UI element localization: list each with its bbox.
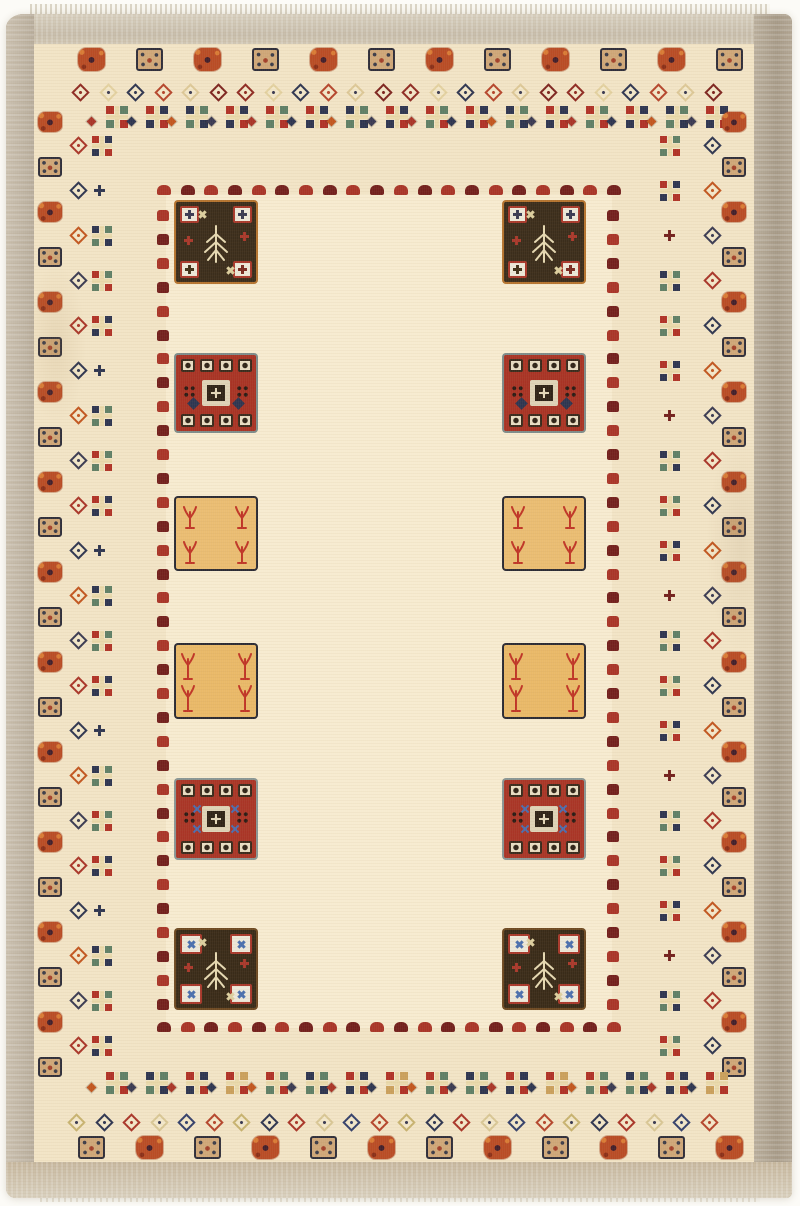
border-square-motif: [484, 48, 511, 71]
dotted-border-motif: [607, 688, 619, 699]
corner-square: [508, 261, 527, 278]
dotted-border-motif: [204, 1022, 218, 1032]
dotted-border-motif: [157, 401, 169, 412]
tree-icon: [199, 947, 233, 991]
diamond-motif: [177, 1113, 195, 1131]
inner-square-dark-tree: [504, 930, 584, 1008]
corner-cross-icon: [566, 210, 575, 219]
inner-square-red-medallion: [504, 355, 584, 431]
diamond-motif: [71, 83, 89, 101]
border-square-motif: [722, 517, 746, 537]
diamond-motif: [69, 226, 87, 244]
dotted-border-motif: [607, 592, 619, 603]
dotted-border-motif: [157, 688, 169, 699]
dotted-border-motif: [157, 449, 169, 460]
cluster-motif: [706, 1072, 728, 1094]
border-square-motif: [542, 48, 569, 71]
dot-cluster: [564, 385, 577, 398]
dot-cluster: [511, 811, 524, 824]
diamond-motif: [703, 946, 721, 964]
diamond-motif: [260, 1113, 278, 1131]
dotted-border-motif: [157, 592, 169, 603]
dotted-border-motif: [607, 521, 619, 532]
navy-diamond-accent: [515, 397, 528, 410]
corner-cross-icon: [566, 265, 575, 274]
center-medallion-core: [207, 385, 225, 401]
dotted-border-motif: [607, 784, 619, 795]
border-square-motif: [722, 562, 746, 582]
dotted-border-motif: [607, 353, 619, 364]
dotted-border-motif: [418, 185, 432, 195]
cluster-motif: [92, 451, 112, 471]
border-square-motif: [722, 697, 746, 717]
center-medallion: [530, 380, 558, 406]
border-square-motif: [658, 48, 685, 71]
border-square-motif: [38, 832, 62, 852]
diamond-motif: [672, 1113, 690, 1131]
cluster-motif: [92, 316, 112, 336]
diamond-motif: [703, 541, 721, 559]
dot-cluster: [183, 811, 196, 824]
diamond-motif: [69, 316, 87, 334]
tree-icon: [181, 502, 199, 530]
cluster-motif: [660, 136, 680, 156]
border-square-motif: [38, 337, 62, 357]
cluster-motif: [426, 1072, 448, 1094]
border-square-motif: [722, 247, 746, 267]
border-square-motif: [38, 427, 62, 447]
border-square-motif: [310, 1136, 337, 1159]
small-diamond-motif: [327, 1083, 337, 1093]
cluster-motif: [660, 361, 680, 381]
cluster-motif: [146, 106, 168, 128]
small-diamond-motif: [607, 1083, 617, 1093]
cluster-motif: [660, 1036, 680, 1056]
border-square-motif: [722, 292, 746, 312]
mini-square: [238, 414, 252, 427]
center-medallion-core: [535, 385, 553, 401]
diamond-motif: [452, 1113, 470, 1131]
small-diamond-motif: [207, 117, 217, 127]
diamond-motif: [69, 181, 87, 199]
dotted-border-motif: [228, 1022, 242, 1032]
diamond-motif: [703, 271, 721, 289]
border-square-motif: [194, 48, 221, 71]
diamond-motif: [703, 181, 721, 199]
border-square-motif: [252, 48, 279, 71]
small-diamond-motif: [287, 117, 297, 127]
diamond-motif: [181, 83, 199, 101]
tree-icon: [561, 537, 579, 565]
dotted-border-motif: [489, 1022, 503, 1032]
cluster-motif: [660, 901, 680, 921]
diamond-motif: [69, 586, 87, 604]
inner-square-red-medallion: [504, 780, 584, 858]
diamond-motif: [676, 83, 694, 101]
mini-square: [219, 784, 233, 797]
mini-square: [547, 841, 561, 854]
tree-icon: [236, 681, 254, 713]
dotted-border-motif: [607, 425, 619, 436]
dotted-border-motif: [607, 234, 619, 245]
cluster-motif: [92, 631, 112, 651]
diamond-motif: [291, 83, 309, 101]
cluster-motif: [506, 106, 528, 128]
tree-icon: [236, 649, 254, 681]
corner-cross-icon: [185, 988, 198, 1001]
tree-icon: [527, 220, 561, 264]
cluster-motif: [586, 106, 608, 128]
mini-square: [528, 841, 542, 854]
corner-cross-icon: [238, 265, 247, 274]
tree-icon: [181, 537, 199, 565]
mini-square: [238, 784, 252, 797]
dotted-border-motif: [607, 712, 619, 723]
border-square-motif: [484, 1136, 511, 1159]
mini-square: [200, 841, 214, 854]
cluster-motif: [660, 451, 680, 471]
small-diamond-motif: [647, 1083, 657, 1093]
mini-square: [566, 414, 580, 427]
border-square-motif: [716, 48, 743, 71]
navy-diamond-accent: [232, 397, 245, 410]
diamond-motif: [703, 856, 721, 874]
diamond-motif: [703, 631, 721, 649]
tree-icon: [507, 649, 525, 681]
mini-square: [509, 359, 523, 372]
diamond-motif: [287, 1113, 305, 1131]
cross-motif: [94, 725, 105, 736]
dotted-border-motif: [607, 569, 619, 580]
center-medallion: [530, 806, 558, 832]
inner-square-tan-trees: [504, 498, 584, 569]
corner-square: [558, 934, 580, 954]
border-square-motif: [38, 382, 62, 402]
corner-cross-icon: [185, 210, 194, 219]
dotted-border-motif: [299, 185, 313, 195]
cluster-motif: [106, 106, 128, 128]
diamond-motif: [374, 83, 392, 101]
cluster-motif: [92, 676, 112, 696]
cluster-motif: [660, 991, 680, 1011]
diamond-motif: [95, 1113, 113, 1131]
diamond-motif: [703, 676, 721, 694]
diamond-motif: [67, 1113, 85, 1131]
border-square-motif: [194, 1136, 221, 1159]
cross-motif: [664, 230, 675, 241]
corner-cross-icon: [238, 210, 247, 219]
small-diamond-motif: [87, 1083, 97, 1093]
diamond-motif: [562, 1113, 580, 1131]
dotted-border-motif: [607, 258, 619, 269]
diamond-motif: [535, 1113, 553, 1131]
border-square-motif: [722, 157, 746, 177]
small-diamond-motif: [567, 117, 577, 127]
diamond-motif: [69, 721, 87, 739]
small-diamond-motif: [127, 117, 137, 127]
border-square-motif: [722, 202, 746, 222]
cluster-motif: [226, 106, 248, 128]
diamond-motif: [397, 1113, 415, 1131]
corner-cross-icon: [513, 938, 526, 951]
dotted-border-motif: [607, 306, 619, 317]
border-square-motif: [136, 48, 163, 71]
small-diamond-motif: [247, 1083, 257, 1093]
border-square-motif: [38, 112, 62, 132]
small-diamond-motif: [367, 117, 377, 127]
dotted-border-motif: [607, 951, 619, 962]
dotted-border-motif: [157, 377, 169, 388]
border-square-motif: [38, 922, 62, 942]
mini-square: [547, 784, 561, 797]
diamond-motif: [346, 83, 364, 101]
border-square-motif: [38, 247, 62, 267]
mini-square: [509, 414, 523, 427]
diamond-motif: [69, 406, 87, 424]
dotted-border-motif: [157, 210, 169, 221]
blue-star-accent: [228, 822, 242, 836]
dotted-border-motif: [157, 282, 169, 293]
dotted-border-motif: [157, 473, 169, 484]
mini-square: [547, 359, 561, 372]
small-diamond-motif: [647, 117, 657, 127]
cluster-motif: [466, 106, 488, 128]
border-square-motif: [38, 562, 62, 582]
dotted-border-motif: [607, 330, 619, 341]
diamond-motif: [209, 83, 227, 101]
cluster-motif: [660, 316, 680, 336]
cross-motif: [664, 410, 675, 421]
corner-cross-icon: [513, 210, 522, 219]
border-square-motif: [38, 1012, 62, 1032]
dotted-border-motif: [157, 951, 169, 962]
border-square-motif: [722, 922, 746, 942]
dotted-border-motif: [607, 640, 619, 651]
cluster-motif: [346, 1072, 368, 1094]
border-square-motif: [722, 1012, 746, 1032]
tree-icon: [564, 681, 582, 713]
cluster-motif: [146, 1072, 168, 1094]
corner-square: [180, 261, 199, 278]
diamond-motif: [621, 83, 639, 101]
cluster-motif: [92, 136, 112, 156]
inner-square-red-medallion: [176, 355, 256, 431]
diamond-motif: [484, 83, 502, 101]
border-square-motif: [78, 1136, 105, 1159]
mini-square: [200, 414, 214, 427]
diamond-motif: [69, 811, 87, 829]
mini-square: [566, 359, 580, 372]
dotted-border-motif: [607, 927, 619, 938]
corner-cross-icon: [513, 265, 522, 274]
motif-layer: [6, 14, 792, 1198]
cluster-motif: [546, 106, 568, 128]
border-square-motif: [722, 112, 746, 132]
tree-icon: [199, 220, 233, 264]
mini-square: [181, 841, 195, 854]
border-square-motif: [426, 48, 453, 71]
diamond-motif: [69, 271, 87, 289]
dotted-border-motif: [323, 1022, 337, 1032]
scatter-mark: [240, 232, 249, 241]
dotted-border-motif: [607, 545, 619, 556]
border-square-motif: [38, 787, 62, 807]
dotted-border-motif: [157, 640, 169, 651]
corner-cross-icon: [563, 938, 576, 951]
diamond-motif: [69, 136, 87, 154]
border-square-motif: [722, 427, 746, 447]
dot-cluster: [564, 811, 577, 824]
dot-cluster: [511, 385, 524, 398]
dotted-border-motif: [157, 616, 169, 627]
diamond-motif: [456, 83, 474, 101]
dotted-border-motif: [607, 831, 619, 842]
cluster-motif: [186, 1072, 208, 1094]
diamond-motif: [703, 136, 721, 154]
cluster-motif: [92, 271, 112, 291]
diamond-motif: [703, 586, 721, 604]
diamond-motif: [69, 1036, 87, 1054]
dotted-border-motif: [252, 1022, 266, 1032]
dotted-border-motif: [157, 234, 169, 245]
border-square-motif: [600, 48, 627, 71]
border-square-motif: [722, 382, 746, 402]
dotted-border-motif: [157, 879, 169, 890]
dotted-border-motif: [607, 616, 619, 627]
diamond-motif: [703, 811, 721, 829]
dotted-border-motif: [607, 808, 619, 819]
mini-square: [181, 359, 195, 372]
scatter-mark: [240, 959, 249, 968]
small-diamond-motif: [527, 1083, 537, 1093]
rug-photo: [0, 0, 800, 1206]
cluster-motif: [92, 811, 112, 831]
cluster-motif: [92, 1036, 112, 1056]
dotted-border-motif: [512, 185, 526, 195]
small-diamond-motif: [127, 1083, 137, 1093]
diamond-motif: [507, 1113, 525, 1131]
small-diamond-motif: [607, 117, 617, 127]
corner-cross-icon: [513, 988, 526, 1001]
cross-motif: [94, 905, 105, 916]
diamond-motif: [69, 856, 87, 874]
dotted-border-motif: [465, 185, 479, 195]
diamond-motif: [703, 766, 721, 784]
diamond-motif: [703, 451, 721, 469]
tree-icon: [527, 947, 561, 991]
tree-icon: [561, 502, 579, 530]
center-medallion: [202, 806, 230, 832]
diamond-motif: [122, 1113, 140, 1131]
mini-square: [528, 359, 542, 372]
mini-square: [566, 841, 580, 854]
mini-square: [200, 784, 214, 797]
cluster-motif: [92, 766, 112, 786]
corner-square: [561, 206, 580, 223]
diamond-motif: [511, 83, 529, 101]
cluster-motif: [660, 181, 680, 201]
cluster-motif: [226, 1072, 248, 1094]
diamond-motif: [703, 406, 721, 424]
border-square-motif: [722, 967, 746, 987]
dotted-border-motif: [157, 521, 169, 532]
dotted-border-motif: [607, 185, 621, 195]
dotted-border-motif: [394, 185, 408, 195]
cluster-motif: [660, 496, 680, 516]
dotted-border-motif: [157, 306, 169, 317]
tree-icon: [233, 537, 251, 565]
dotted-border-motif: [252, 185, 266, 195]
cluster-motif: [346, 106, 368, 128]
dotted-border-motif: [607, 855, 619, 866]
cluster-motif: [626, 106, 648, 128]
small-diamond-motif: [567, 1083, 577, 1093]
dotted-border-motif: [607, 497, 619, 508]
mini-square: [238, 359, 252, 372]
dotted-border-motif: [418, 1022, 432, 1032]
corner-square: [230, 934, 252, 954]
dotted-border-motif: [157, 497, 169, 508]
border-square-motif: [38, 967, 62, 987]
cluster-motif: [660, 271, 680, 291]
dotted-border-motif: [607, 903, 619, 914]
dotted-border-motif: [157, 927, 169, 938]
cross-motif: [664, 950, 675, 961]
dotted-border-motif: [157, 831, 169, 842]
dotted-border-motif: [157, 1022, 171, 1032]
border-square-motif: [368, 48, 395, 71]
small-diamond-motif: [487, 1083, 497, 1093]
diamond-motif: [69, 991, 87, 1009]
corner-cross-icon: [185, 265, 194, 274]
border-square-motif: [722, 787, 746, 807]
dotted-border-motif: [157, 185, 171, 195]
border-square-motif: [600, 1136, 627, 1159]
cluster-motif: [186, 106, 208, 128]
dotted-border-motif: [441, 1022, 455, 1032]
border-square-motif: [38, 202, 62, 222]
tree-icon: [507, 681, 525, 713]
mini-square: [528, 414, 542, 427]
scatter-mark: [184, 236, 193, 245]
scatter-mark: [568, 959, 577, 968]
scatter-mark: [184, 963, 193, 972]
dotted-border-motif: [607, 473, 619, 484]
cluster-motif: [660, 631, 680, 651]
corner-square: [233, 206, 252, 223]
center-medallion-core: [207, 811, 225, 827]
dotted-border-motif: [489, 185, 503, 195]
diamond-motif: [429, 83, 447, 101]
dotted-border-motif: [323, 185, 337, 195]
diamond-motif: [264, 83, 282, 101]
cluster-motif: [660, 721, 680, 741]
dotted-border-motif: [275, 185, 289, 195]
tree-icon: [564, 649, 582, 681]
dotted-border-motif: [536, 185, 550, 195]
scatter-mark: [512, 963, 521, 972]
mini-square: [219, 414, 233, 427]
diamond-motif: [69, 451, 87, 469]
dotted-border-motif: [583, 1022, 597, 1032]
corner-cross-icon: [185, 938, 198, 951]
border-square-motif: [252, 1136, 279, 1159]
diamond-motif: [232, 1113, 250, 1131]
inner-square-dark-tree: [504, 202, 584, 282]
navy-diamond-accent: [560, 397, 573, 410]
blue-star-accent: [556, 822, 570, 836]
cluster-motif: [660, 541, 680, 561]
